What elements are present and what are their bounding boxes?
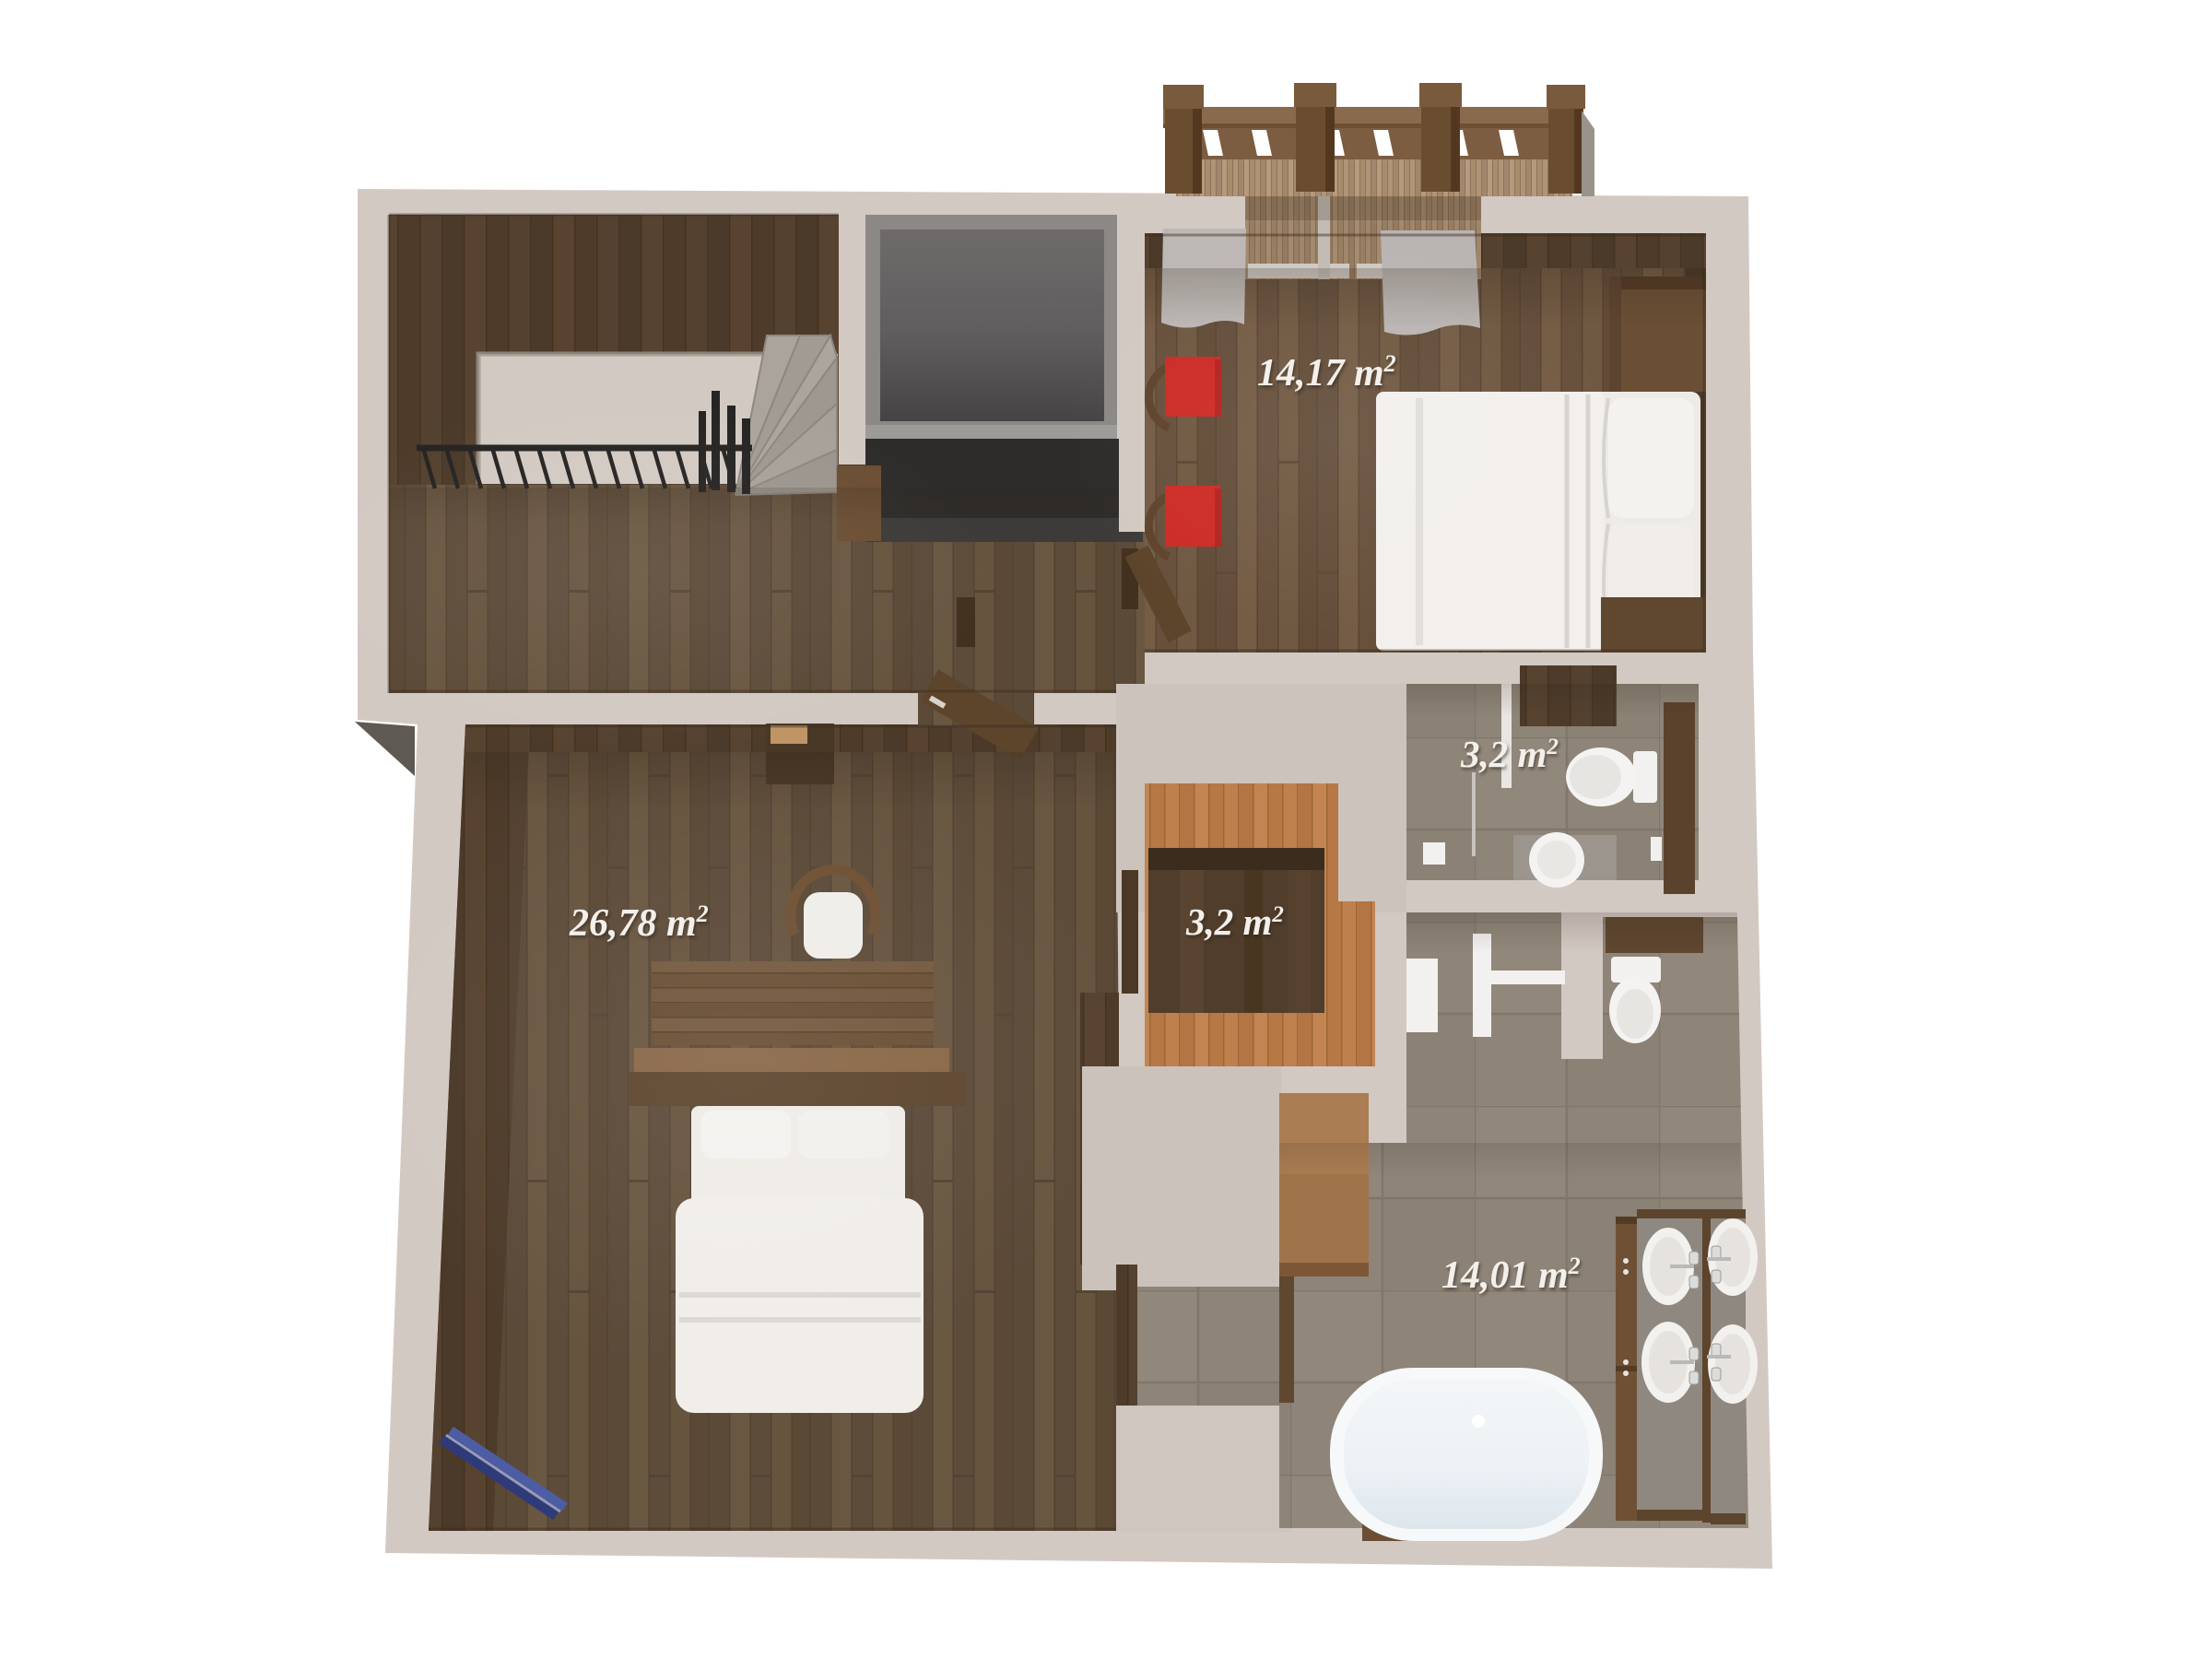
svg-text:14,01 m2: 14,01 m2 — [1441, 1253, 1581, 1297]
svg-text:3,2 m2: 3,2 m2 — [1185, 900, 1284, 943]
svg-text:26,78 m2: 26,78 m2 — [569, 900, 709, 945]
svg-text:14,17 m2: 14,17 m2 — [1257, 350, 1396, 394]
svg-text:3,2 m2: 3,2 m2 — [1460, 733, 1559, 775]
